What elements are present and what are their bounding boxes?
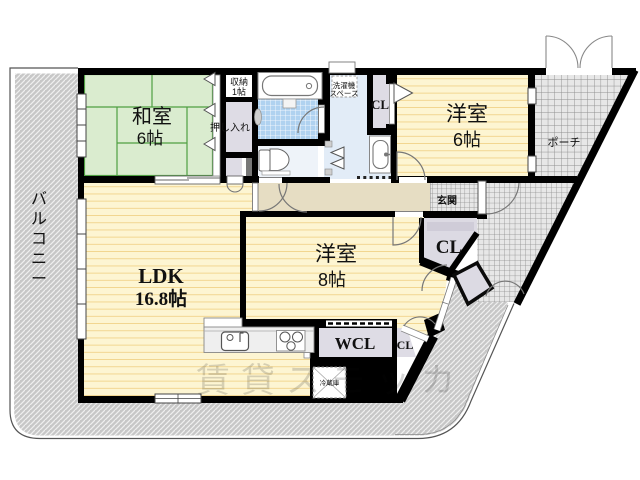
svg-text:ニ: ニ bbox=[31, 251, 47, 268]
svg-text:8帖: 8帖 bbox=[318, 270, 346, 290]
svg-text:16.8帖: 16.8帖 bbox=[135, 287, 187, 310]
svg-text:6帖: 6帖 bbox=[453, 130, 481, 150]
svg-text:ル: ル bbox=[31, 211, 47, 228]
svg-text:コ: コ bbox=[31, 231, 47, 248]
svg-text:WCL: WCL bbox=[335, 334, 376, 353]
svg-text:6帖: 6帖 bbox=[137, 129, 163, 148]
svg-text:LDK: LDK bbox=[138, 264, 184, 288]
svg-text:洋室: 洋室 bbox=[446, 103, 488, 126]
svg-text:CL: CL bbox=[371, 97, 389, 112]
svg-text:CL: CL bbox=[397, 338, 414, 352]
svg-text:ー: ー bbox=[31, 271, 47, 288]
svg-text:玄関: 玄関 bbox=[437, 194, 457, 207]
svg-text:賃貸スモッカ: 賃貸スモッカ bbox=[196, 362, 466, 400]
svg-text:押し入れ: 押し入れ bbox=[210, 121, 250, 134]
svg-text:スペース: スペース bbox=[329, 89, 358, 98]
svg-text:CL: CL bbox=[436, 237, 462, 258]
svg-text:バ: バ bbox=[31, 191, 47, 208]
svg-text:ポーチ: ポーチ bbox=[548, 136, 581, 149]
svg-text:1帖: 1帖 bbox=[232, 86, 246, 97]
svg-text:収納: 収納 bbox=[230, 76, 248, 87]
svg-text:和室: 和室 bbox=[132, 105, 172, 128]
svg-text:洋室: 洋室 bbox=[315, 243, 357, 266]
